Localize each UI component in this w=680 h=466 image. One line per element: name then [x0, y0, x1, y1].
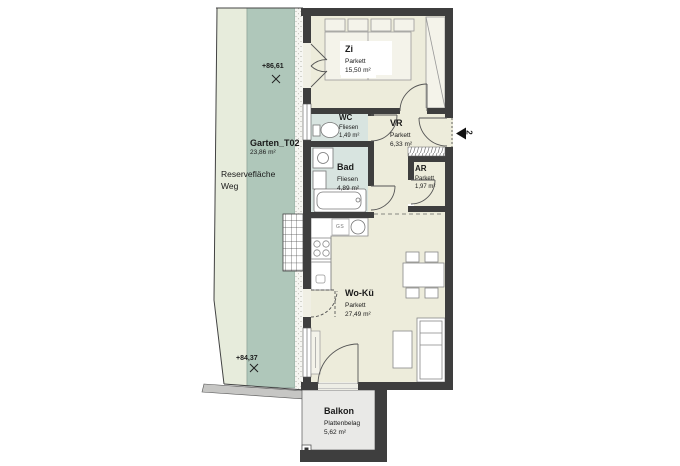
- room-label-balkon: Balkon Plattenbelag 5,62 m²: [324, 406, 360, 437]
- garden-area-value: 23,86 m²: [250, 148, 300, 157]
- room-area-bad: 4,89 m²: [337, 184, 359, 193]
- reserve-label: Reservefläche Weg: [221, 168, 275, 192]
- room-area-wc: 1,49 m²: [339, 132, 359, 140]
- room-name-balkon: Balkon: [324, 406, 360, 416]
- room-label-wc: WC Fliesen 1,49 m²: [339, 113, 359, 140]
- shaft-hatch: [408, 147, 445, 156]
- garden-name: Garten_T02: [250, 138, 300, 148]
- garden-reserve-strip: [214, 8, 247, 386]
- wardrobe: [426, 17, 445, 108]
- room-finish-wc: Fliesen: [339, 124, 359, 132]
- room-finish-bad: Fliesen: [337, 175, 359, 184]
- bath-cabinet: [313, 171, 326, 189]
- room-finish-ar: Parkett: [415, 175, 435, 183]
- room-finish-woku: Parkett: [345, 301, 374, 310]
- room-label-ar: AR Parkett 1,97 m²: [415, 164, 435, 191]
- garden-gravel-texture: [295, 8, 303, 390]
- room-name-wc: WC: [339, 113, 359, 123]
- woku-window: [303, 328, 320, 377]
- garden-label: Garten_T02 23,86 m²: [250, 138, 300, 157]
- room-label-woku: Wo-Kü Parkett 27,49 m²: [345, 288, 374, 319]
- room-label-bad: Bad Fliesen 4,89 m²: [337, 162, 359, 193]
- toilet: [313, 123, 339, 138]
- room-name-woku: Wo-Kü: [345, 288, 374, 298]
- room-label-vr: VR Parkett 6,33 m²: [390, 118, 412, 149]
- room-finish-vr: Parkett: [390, 131, 412, 140]
- floorplan-canvas: Zi Parkett 15,50 m² WC Fliesen 1,49 m² V…: [0, 0, 680, 466]
- garden-grate: [283, 214, 305, 271]
- reserve-line1: Reservefläche: [221, 168, 275, 180]
- room-finish-balkon: Plattenbelag: [324, 419, 360, 428]
- entrance-unit-number: 2: [465, 130, 474, 134]
- garden-area: [202, 8, 305, 399]
- coffee-table: [393, 331, 412, 368]
- room-name-ar: AR: [415, 164, 435, 174]
- room-area-woku: 27,49 m²: [345, 310, 374, 319]
- room-name-zi: Zi: [345, 44, 371, 54]
- room-name-vr: VR: [390, 118, 412, 128]
- room-name-bad: Bad: [337, 162, 359, 172]
- dishwasher-label: GS: [336, 224, 344, 230]
- floorplan-drawing: [0, 0, 680, 466]
- room-finish-zi: Parkett: [345, 57, 371, 66]
- room-area-balkon: 5,62 m²: [324, 428, 360, 437]
- room-area-ar: 1,97 m²: [415, 183, 435, 191]
- sofa: [417, 318, 445, 382]
- room-label-zi: Zi Parkett 15,50 m²: [341, 42, 376, 78]
- reserve-line2: Weg: [221, 180, 275, 192]
- room-area-vr: 6,33 m²: [390, 140, 412, 149]
- bath-window: [303, 104, 311, 140]
- elevation-upper-label: +86,61: [262, 63, 284, 70]
- room-area-zi: 15,50 m²: [345, 66, 371, 75]
- washing-machine: [313, 148, 333, 168]
- elevation-lower-label: +84,37: [236, 355, 258, 362]
